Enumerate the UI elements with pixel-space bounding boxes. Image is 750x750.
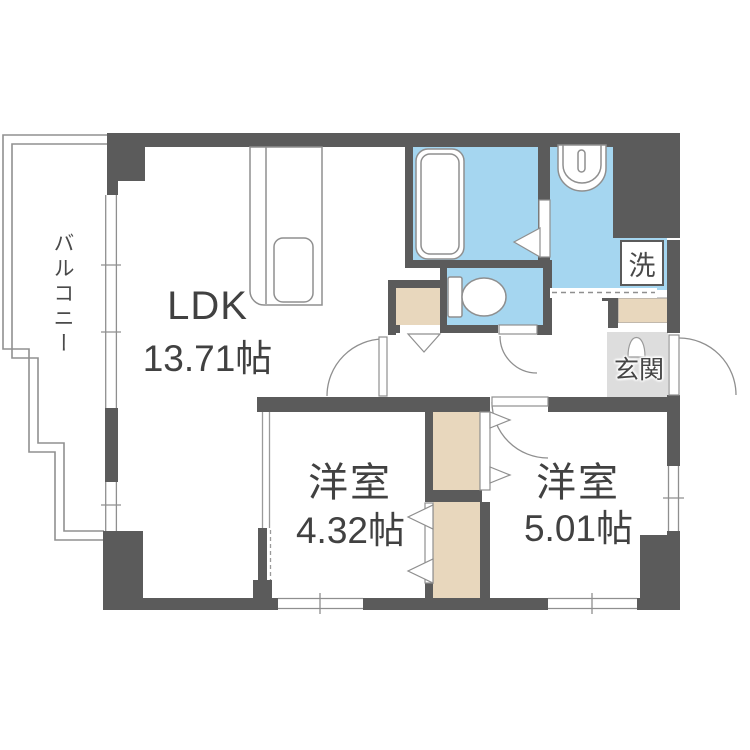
washing-machine-label: 洗 — [629, 244, 656, 283]
toilet-icon — [448, 277, 506, 317]
ldk-label: LDK — [120, 284, 295, 329]
window-ldk-left-lower — [101, 482, 121, 531]
closet-bottom-floor — [433, 502, 480, 598]
hall-storage-floor — [396, 288, 440, 325]
balcony-label: バルコニー — [47, 222, 77, 367]
door-ldk-hallway — [327, 337, 387, 396]
door-washroom-accordion — [550, 288, 657, 298]
washing-machine-box: 洗 — [620, 240, 664, 286]
door-bedroom2 — [492, 397, 548, 458]
bathtub-icon — [416, 149, 464, 259]
bedroom1-size-label: 4.32帖 — [263, 500, 438, 554]
window-bedroom2-right — [663, 466, 684, 531]
kitchen-counter-icon — [250, 147, 322, 305]
window-bedroom1 — [278, 593, 363, 614]
entrance-step — [618, 323, 668, 332]
window-bedroom2-bottom — [548, 593, 637, 614]
bedroom2-size-label: 5.01帖 — [491, 498, 666, 552]
floor-plan: バルコニー LDK 13.71帖 洋室 4.32帖 洋室 5.01帖 玄関 洗 — [0, 0, 750, 750]
entrance-label: 玄関 — [608, 350, 670, 386]
closet-top-floor — [433, 412, 480, 490]
door-toilet — [499, 325, 537, 373]
door-hall-storage — [400, 325, 440, 352]
washbasin-icon — [558, 145, 606, 191]
door-entrance — [669, 335, 736, 395]
ldk-size-label: 13.71帖 — [110, 328, 305, 382]
shoe-cabinet — [618, 298, 668, 323]
